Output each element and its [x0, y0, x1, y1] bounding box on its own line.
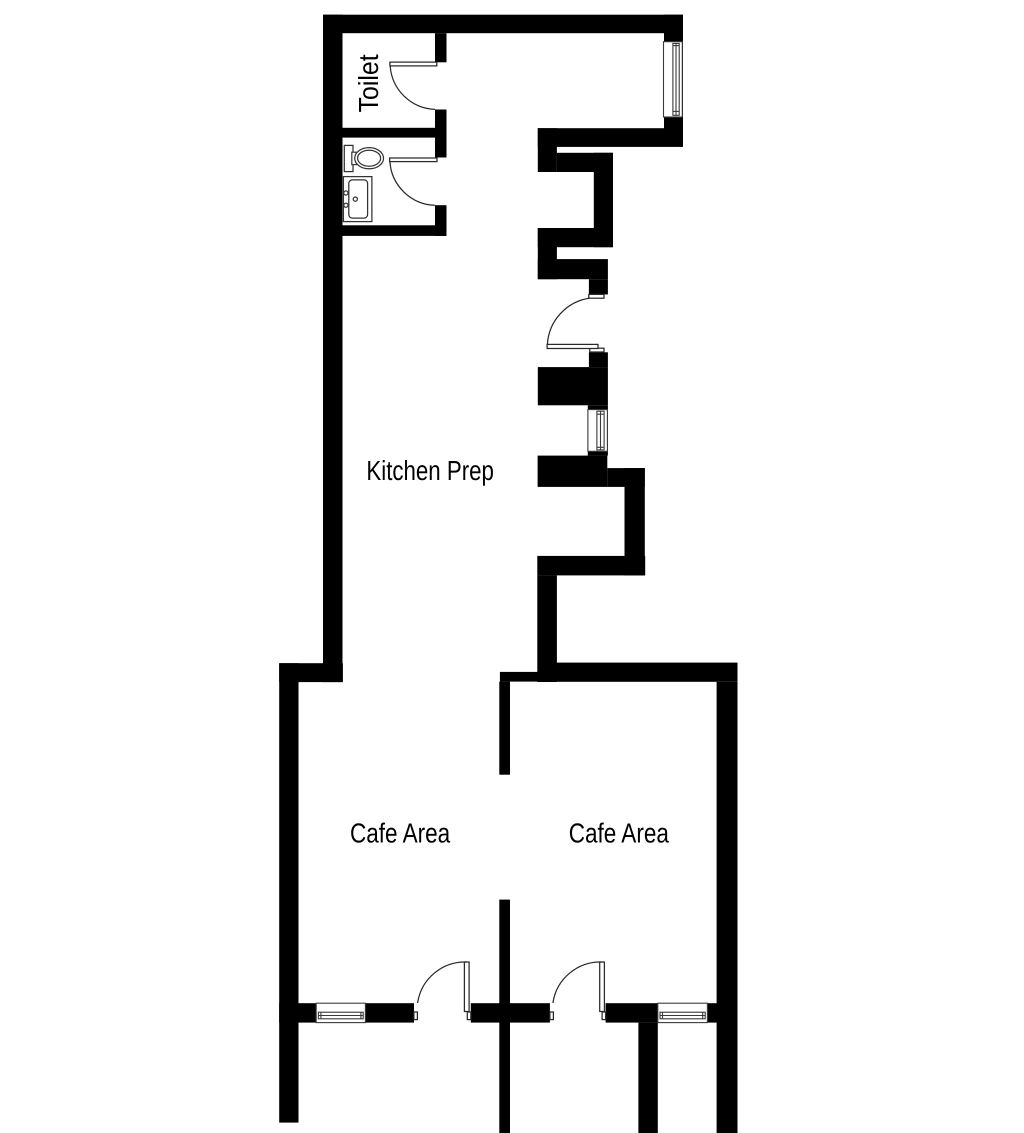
svg-text:Cafe Area: Cafe Area	[569, 817, 670, 848]
svg-text:Cafe Area: Cafe Area	[350, 817, 451, 848]
svg-text:Toilet: Toilet	[353, 54, 384, 112]
svg-text:Kitchen Prep: Kitchen Prep	[366, 455, 494, 486]
